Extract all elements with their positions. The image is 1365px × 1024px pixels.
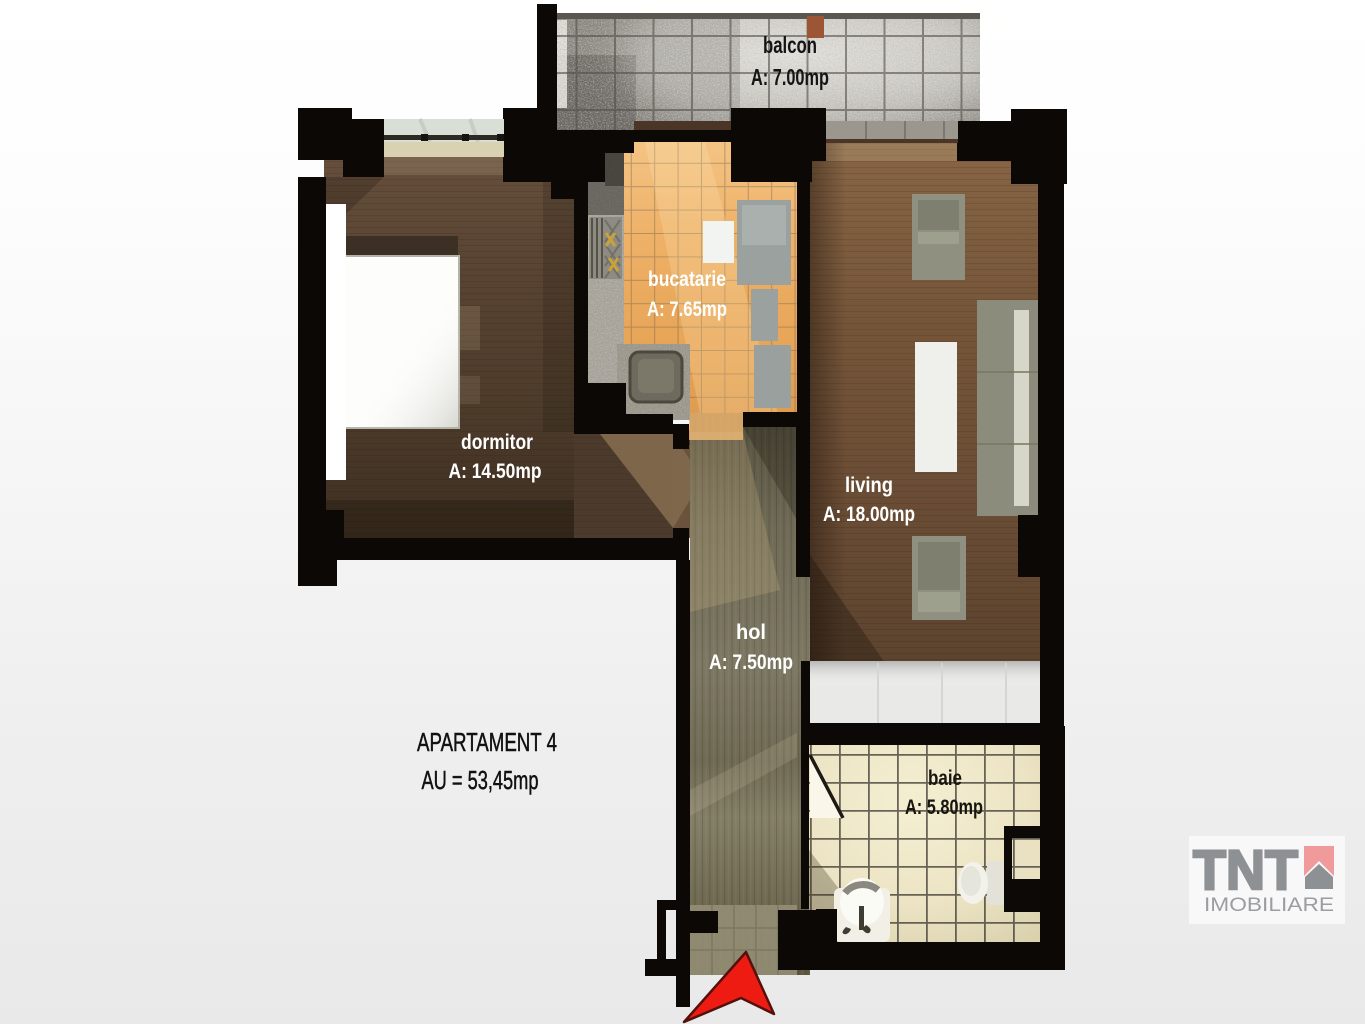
svg-text:IMOBILIARE: IMOBILIARE: [1204, 895, 1334, 916]
svg-text:living: living: [845, 474, 893, 497]
svg-text:A: 14.50mp: A: 14.50mp: [449, 460, 542, 483]
svg-text:balcon: balcon: [763, 32, 817, 58]
svg-text:TNT: TNT: [1193, 838, 1298, 901]
svg-text:A: 5.80mp: A: 5.80mp: [905, 796, 983, 819]
svg-text:APARTAMENT 4: APARTAMENT 4: [417, 727, 557, 757]
svg-text:dormitor: dormitor: [461, 431, 533, 454]
svg-text:A: 7.65mp: A: 7.65mp: [647, 298, 727, 321]
svg-text:bucatarie: bucatarie: [648, 268, 726, 291]
svg-text:AU = 53,45mp: AU = 53,45mp: [422, 765, 539, 795]
svg-text:baie: baie: [928, 767, 962, 790]
svg-text:A: 7.00mp: A: 7.00mp: [751, 64, 829, 90]
svg-text:A: 18.00mp: A: 18.00mp: [823, 503, 915, 526]
svg-text:hol: hol: [736, 621, 766, 644]
svg-text:A: 7.50mp: A: 7.50mp: [709, 651, 793, 674]
